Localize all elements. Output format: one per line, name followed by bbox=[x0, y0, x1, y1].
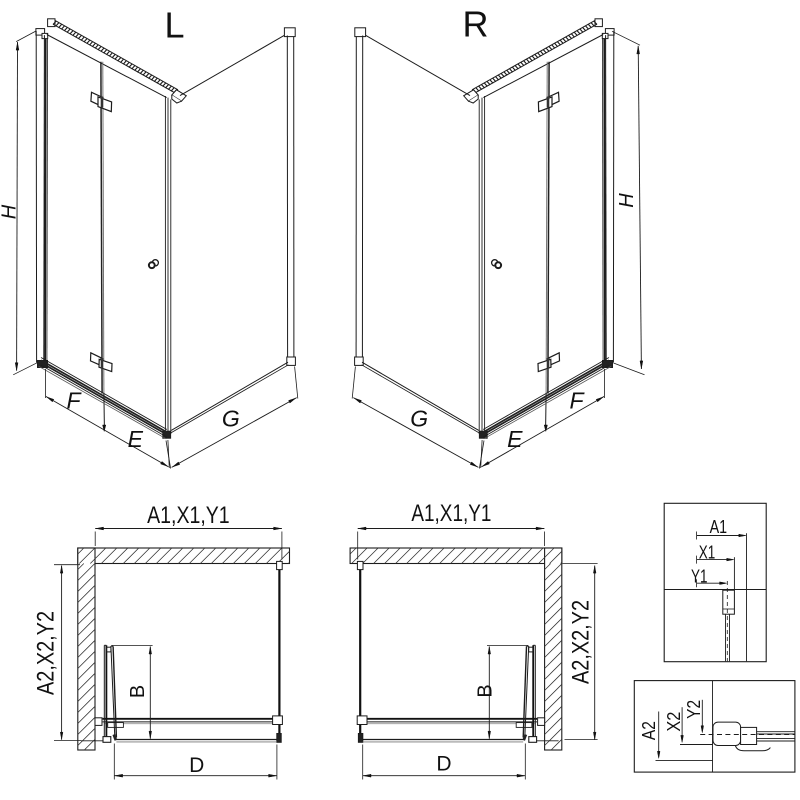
svg-text:Y1: Y1 bbox=[691, 567, 708, 587]
svg-text:A1,X1,Y1: A1,X1,Y1 bbox=[147, 502, 230, 529]
svg-text:X2: X2 bbox=[664, 712, 684, 732]
svg-text:L: L bbox=[164, 5, 184, 46]
svg-text:B: B bbox=[475, 684, 497, 697]
svg-text:F: F bbox=[66, 388, 82, 414]
svg-text:X1: X1 bbox=[699, 542, 716, 562]
svg-text:G: G bbox=[410, 405, 428, 431]
svg-text:D: D bbox=[189, 754, 204, 777]
svg-text:F: F bbox=[569, 388, 585, 414]
svg-text:E: E bbox=[507, 426, 523, 452]
svg-text:A2,X2,Y2: A2,X2,Y2 bbox=[568, 600, 595, 684]
svg-text:H: H bbox=[616, 193, 638, 208]
svg-text:A1,X1,Y1: A1,X1,Y1 bbox=[411, 500, 491, 527]
svg-text:R: R bbox=[463, 4, 489, 45]
svg-text:G: G bbox=[222, 405, 240, 431]
svg-text:A2: A2 bbox=[639, 721, 659, 740]
svg-text:Y2: Y2 bbox=[684, 700, 704, 719]
svg-text:E: E bbox=[128, 426, 144, 452]
svg-text:H: H bbox=[0, 204, 20, 219]
svg-text:A1: A1 bbox=[710, 517, 728, 537]
svg-text:B: B bbox=[127, 685, 149, 698]
svg-text:D: D bbox=[436, 753, 451, 776]
svg-text:A2,X2,Y2: A2,X2,Y2 bbox=[33, 611, 60, 695]
